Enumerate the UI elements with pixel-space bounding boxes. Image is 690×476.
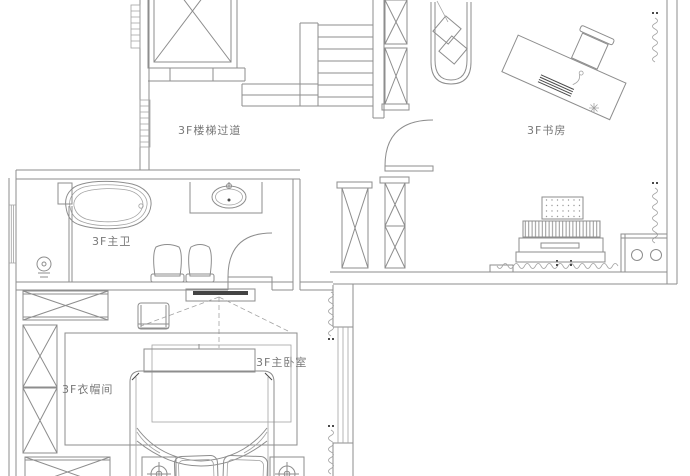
room-label-stair-corridor: 3F楼梯过道 [178, 123, 241, 137]
nightstand-left [142, 457, 176, 476]
insulation-study-bottom-icon [497, 260, 618, 269]
tv-cabinet [186, 289, 255, 301]
shower-drain-icon [37, 257, 51, 277]
desk [502, 3, 640, 120]
room-label-study: 3F书房 [527, 124, 566, 137]
corner-cabinet [621, 234, 667, 272]
room-label-master-bathroom: 3F主卫 [92, 235, 131, 248]
headboard [144, 344, 255, 372]
piano-stool [542, 197, 583, 219]
plant-icon [589, 103, 599, 113]
toilet [151, 245, 184, 283]
window-corridor-upper-icon [131, 5, 140, 48]
bathroom-top-wall [16, 170, 300, 179]
study-right-wall [667, 0, 677, 284]
tv-sightlines [141, 297, 288, 348]
study-partition-wall [373, 0, 409, 118]
room-label-master-bedroom: 3F主卧室 [256, 355, 307, 369]
left-outer-wall [9, 178, 16, 476]
elevator-shaft [148, 0, 237, 68]
elevator-door-sill [148, 68, 245, 81]
bathroom-right-wall [293, 179, 300, 290]
room-label-cloakroom: 3F衣帽间 [62, 382, 113, 396]
stair-landing-steps [242, 84, 373, 106]
bathroom-door-swing [228, 233, 272, 282]
window-bedroom-icon [333, 327, 353, 443]
pillow-right [222, 455, 268, 476]
bathtub [66, 181, 151, 228]
insulation-right-wall-icon [652, 12, 658, 243]
shower-partition [58, 183, 72, 282]
bathroom-bottom-wall [16, 282, 333, 290]
bidet [186, 245, 214, 283]
passage-cabinets [337, 177, 409, 268]
staircase [300, 23, 373, 106]
lounge-chair [431, 1, 471, 84]
study-door-swing [385, 120, 433, 171]
nightstand-right [270, 457, 304, 476]
floor-plan-canvas: 3F楼梯过道 3F书房 3F主卫 3F主卧室 3F衣帽间 [0, 0, 690, 476]
piano [516, 221, 605, 262]
window-bathroom-left-icon [9, 205, 16, 263]
floor-plan-drawing: 3F楼梯过道 3F书房 3F主卫 3F主卧室 3F衣帽间 [0, 0, 690, 476]
washbasin [212, 182, 246, 208]
